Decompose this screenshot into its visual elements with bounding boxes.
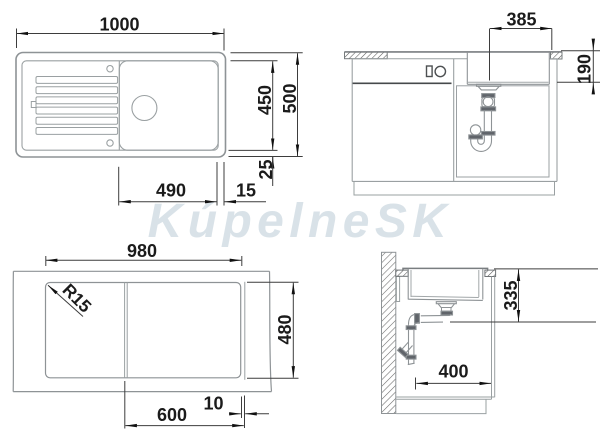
svg-text:490: 490 [156,181,186,201]
svg-text:480: 480 [275,314,295,344]
svg-text:25: 25 [256,159,276,179]
svg-text:KúpelneSK: KúpelneSK [148,195,453,248]
svg-text:980: 980 [127,241,157,261]
svg-text:385: 385 [506,10,536,30]
svg-text:1000: 1000 [99,15,139,35]
svg-text:190: 190 [574,54,594,84]
svg-text:600: 600 [157,405,187,425]
svg-text:335: 335 [501,280,521,310]
svg-text:400: 400 [438,362,468,382]
svg-text:15: 15 [236,181,256,201]
svg-text:10: 10 [203,394,223,414]
svg-text:500: 500 [280,83,300,113]
svg-text:450: 450 [255,85,275,115]
